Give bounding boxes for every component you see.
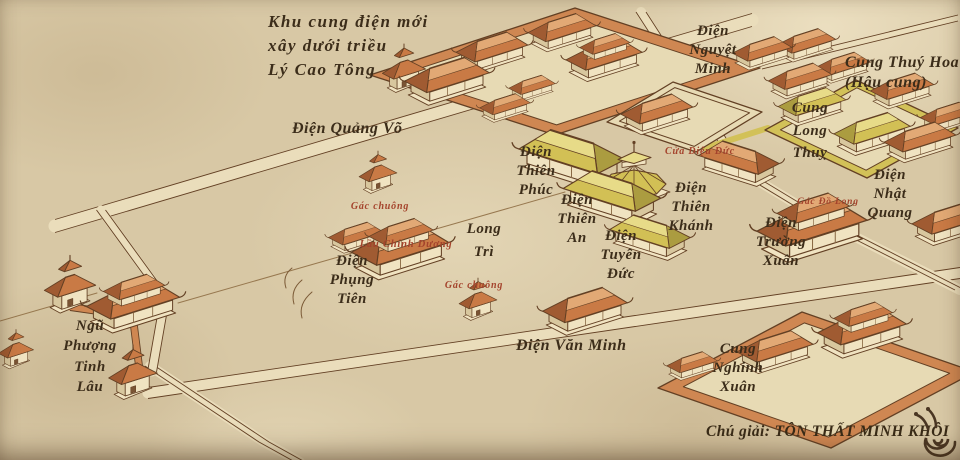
palace-building [907,203,960,246]
palace-building [44,256,95,314]
gac-chuong-1-tower [359,151,397,193]
snail-logo-icon [912,406,960,458]
label-dien-quang-vo: Điện Quảng Võ [292,119,403,139]
label-dien-truong-xuan: Điện Trường Xuân [756,214,806,270]
label-ngu-phuong-tinh-lau: Ngũ Phượng Tinh Lâu [63,316,116,397]
label-khu-cung-dien-moi: Khu cung điện mới xây dưới triều Lý Cao … [268,10,429,81]
label-dien-thien-phuc: Điện Thiên Phúc [516,143,555,199]
label-dien-nguyet-minh: Điện Nguyệt Minh [689,22,736,78]
label-gac-chuong-2: Gác chuông [445,280,503,293]
label-long-tri: Long Trì [467,218,502,263]
label-cung-long-thuy: Cung Long Thuỵ [792,97,828,165]
label-dien-thien-an: Điện Thiên An [557,191,596,247]
label-dien-thien-khanh: Điện Thiên Khánh [668,179,713,235]
label-cung-thuy-hoa: Cung Thuý Hoa (Hậu cung) [845,53,959,93]
palace-building [0,330,34,369]
label-lau-chinh-duong: Lầu Chính Dương [360,238,453,251]
label-gac-do-long: Gác Đồ Long [797,197,859,209]
label-dien-nhat-quang: Điện Nhật Quang [867,166,912,222]
label-cua-dieu-duc: Cửa Diệu Đức [665,146,735,159]
label-dien-tuyen-duc: Điện Tuyên Đức [600,227,641,283]
label-cung-nghinh-xuan: Cung Nghinh Xuân [713,340,764,396]
label-gac-chuong-1: Gác chuông [351,201,409,214]
label-dien-phung-tien: Điện Phụng Tiên [330,252,374,308]
label-dien-van-minh: Điện Văn Minh [516,336,627,356]
palace-map: Khu cung điện mới xây dưới triều Lý Cao … [0,0,960,460]
